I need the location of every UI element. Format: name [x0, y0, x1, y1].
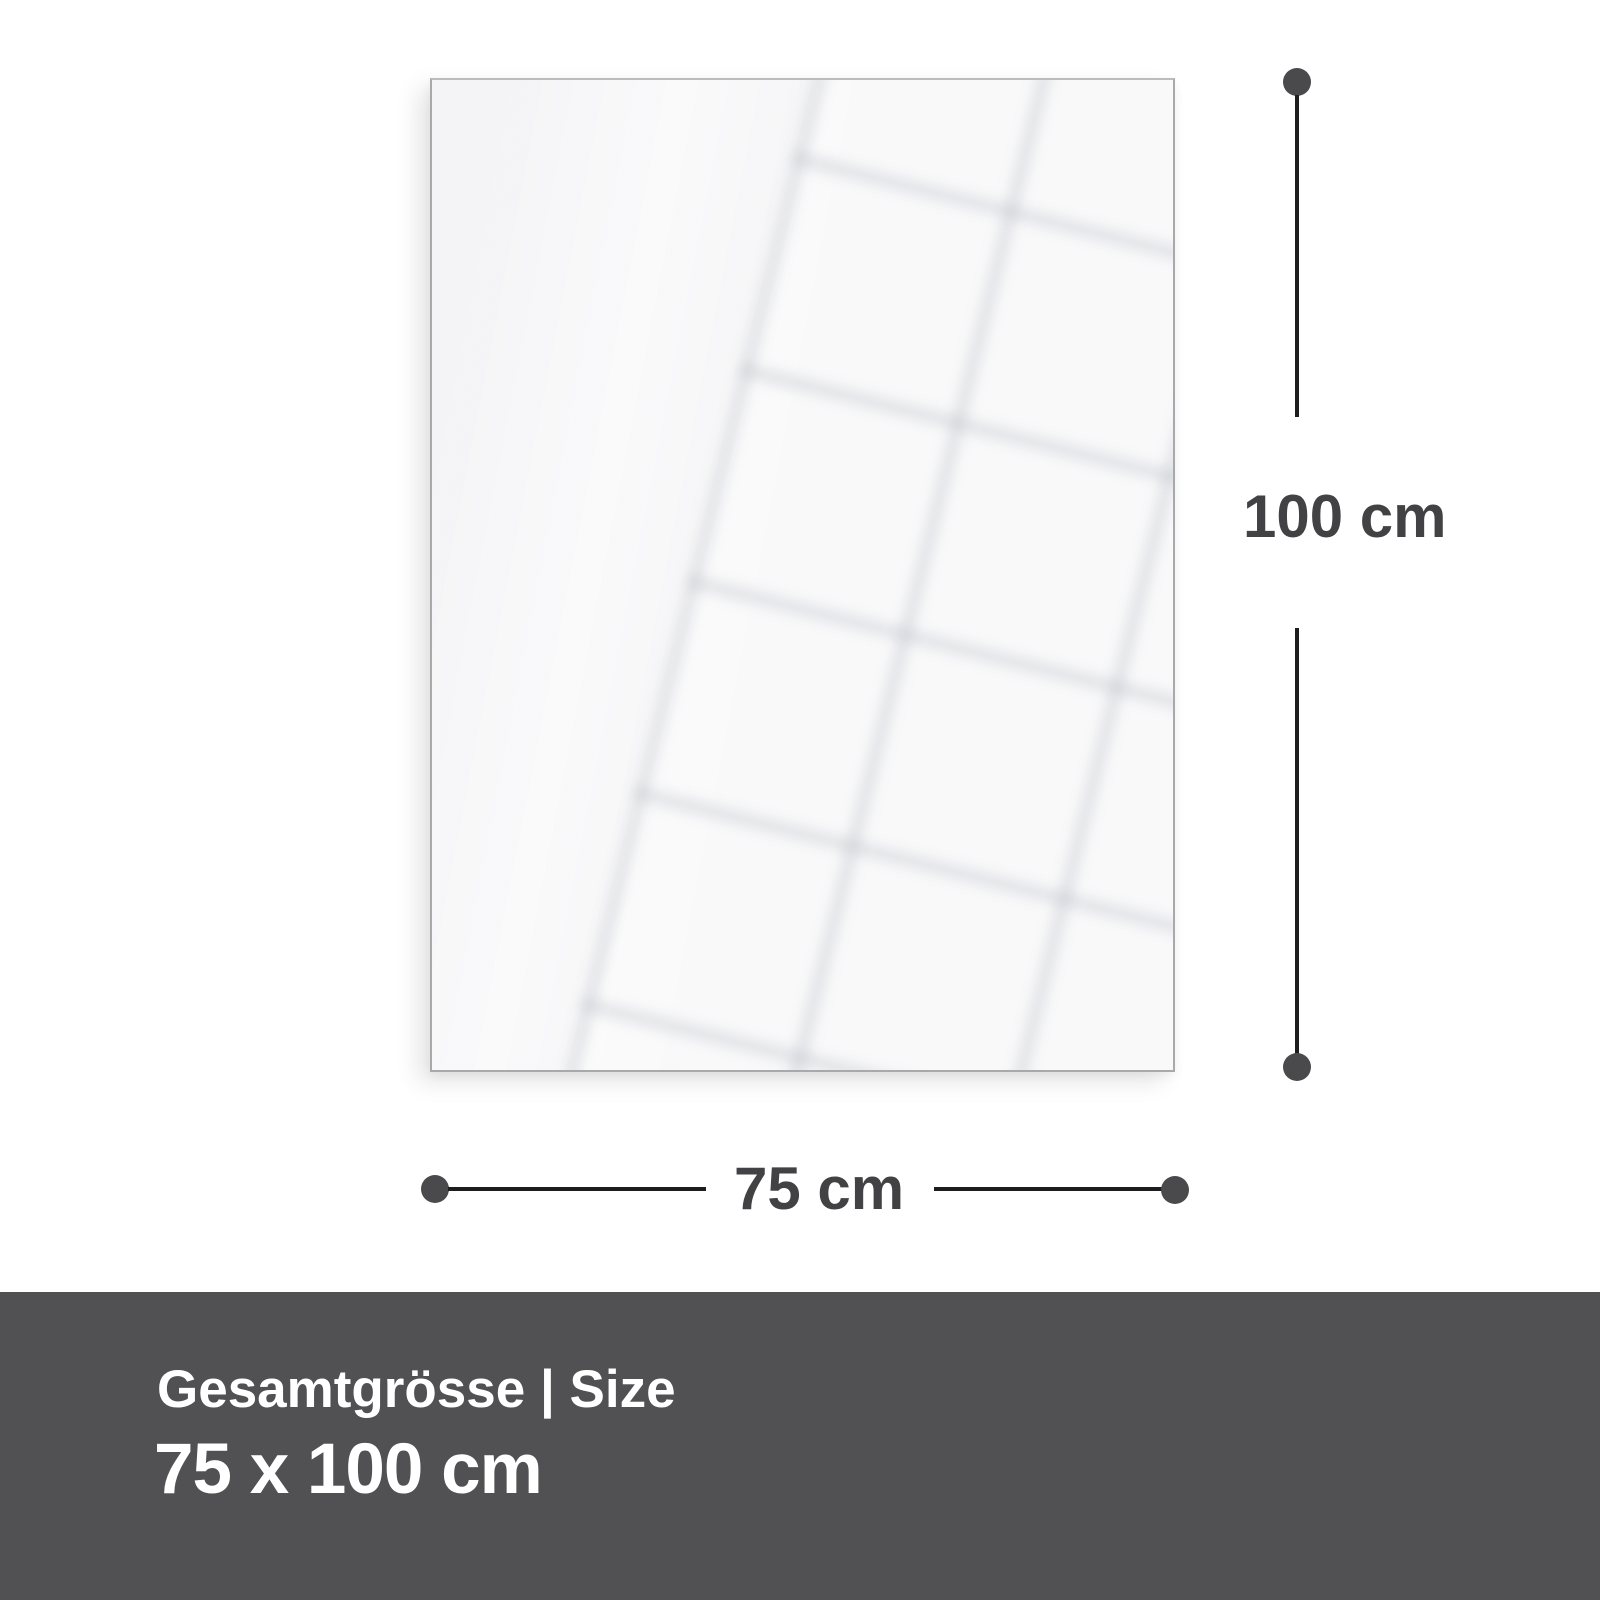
- height-dimension-upper-line: [1295, 95, 1299, 417]
- width-dimension-label: 75 cm: [734, 1159, 904, 1219]
- height-dimension-label: 100 cm: [1243, 487, 1447, 547]
- width-dimension-left-dot: [421, 1175, 449, 1203]
- size-diagram: 100 cm 75 cm Gesamtgrösse | Size 75 x 10…: [0, 0, 1600, 1600]
- width-dimension-left-line: [448, 1187, 706, 1191]
- width-dimension-right-line: [934, 1187, 1162, 1191]
- footer-size-value: 75 x 100 cm: [154, 1434, 542, 1505]
- height-dimension-lower-line: [1295, 628, 1299, 1054]
- product-panel: [430, 78, 1175, 1072]
- width-dimension-right-dot: [1161, 1176, 1189, 1204]
- footer-title: Gesamtgrösse | Size: [157, 1363, 676, 1416]
- height-dimension-bottom-dot: [1283, 1053, 1311, 1081]
- height-dimension-top-dot: [1283, 68, 1311, 96]
